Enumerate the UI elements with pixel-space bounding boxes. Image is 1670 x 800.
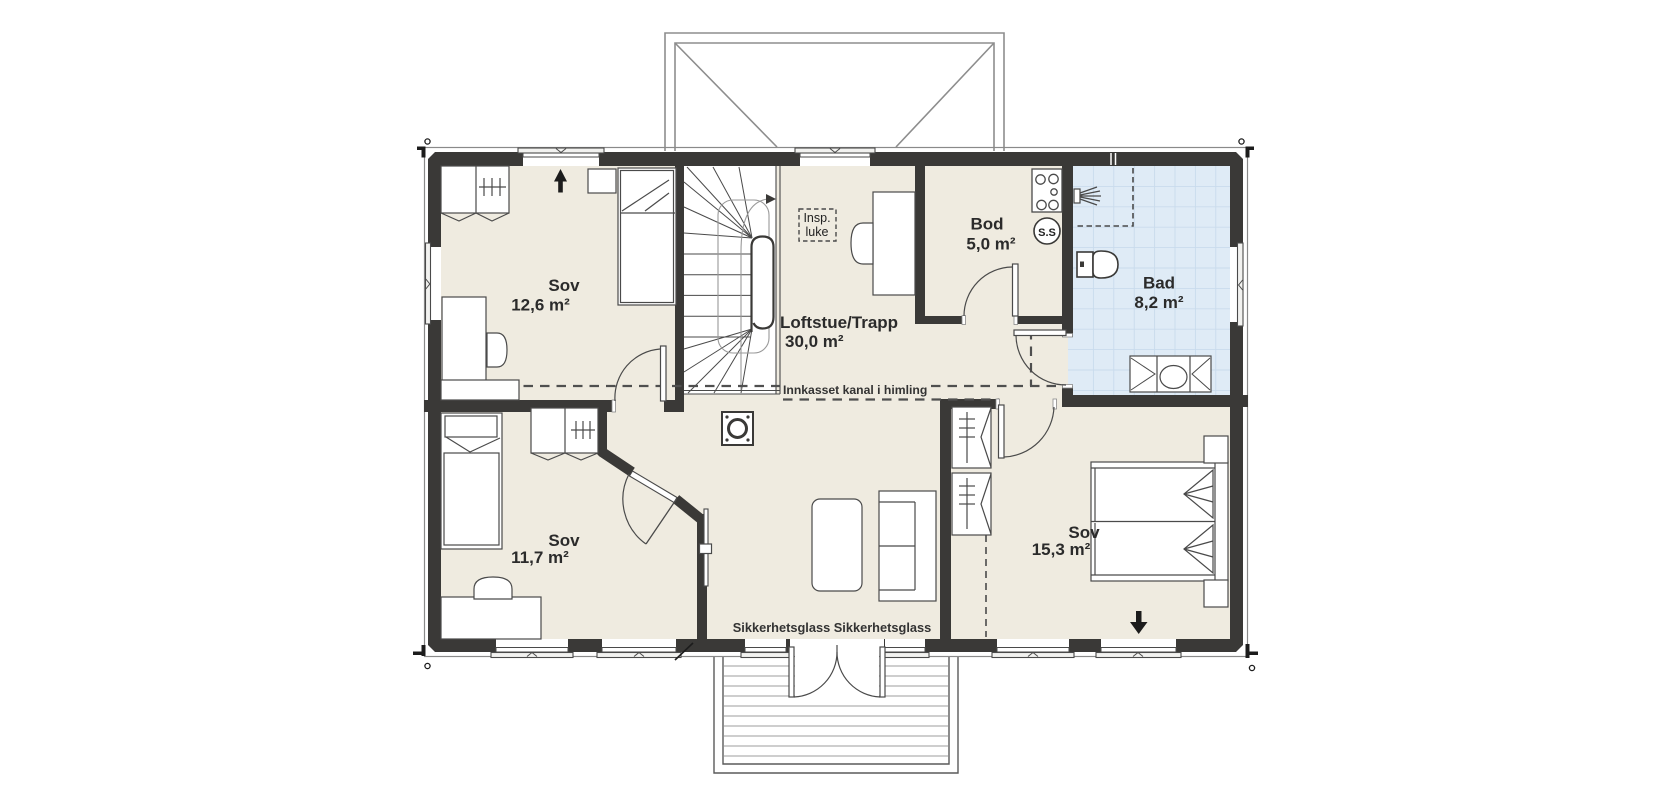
svg-text:Bad: Bad [1143,274,1175,293]
svg-text:Loftstue/Trapp: Loftstue/Trapp [780,313,898,332]
svg-text:luke: luke [806,225,829,239]
svg-text:Sov: Sov [548,276,580,295]
svg-text:11,7 m²: 11,7 m² [511,548,569,567]
svg-text:Bod: Bod [970,215,1003,234]
svg-text:5,0 m²: 5,0 m² [966,235,1015,254]
svg-text:Insp.: Insp. [803,211,830,225]
svg-text:12,6 m²: 12,6 m² [511,296,570,315]
svg-text:Sikkerhetsglass Sikkerhetsglas: Sikkerhetsglass Sikkerhetsglass [733,620,931,635]
svg-text:30,0 m²: 30,0 m² [785,332,844,351]
svg-text:Innkasset kanal i himling: Innkasset kanal i himling [783,383,927,397]
svg-text:15,3 m²: 15,3 m² [1032,540,1091,559]
svg-text:8,2 m²: 8,2 m² [1134,293,1183,312]
svg-text:S.S: S.S [1038,227,1056,239]
